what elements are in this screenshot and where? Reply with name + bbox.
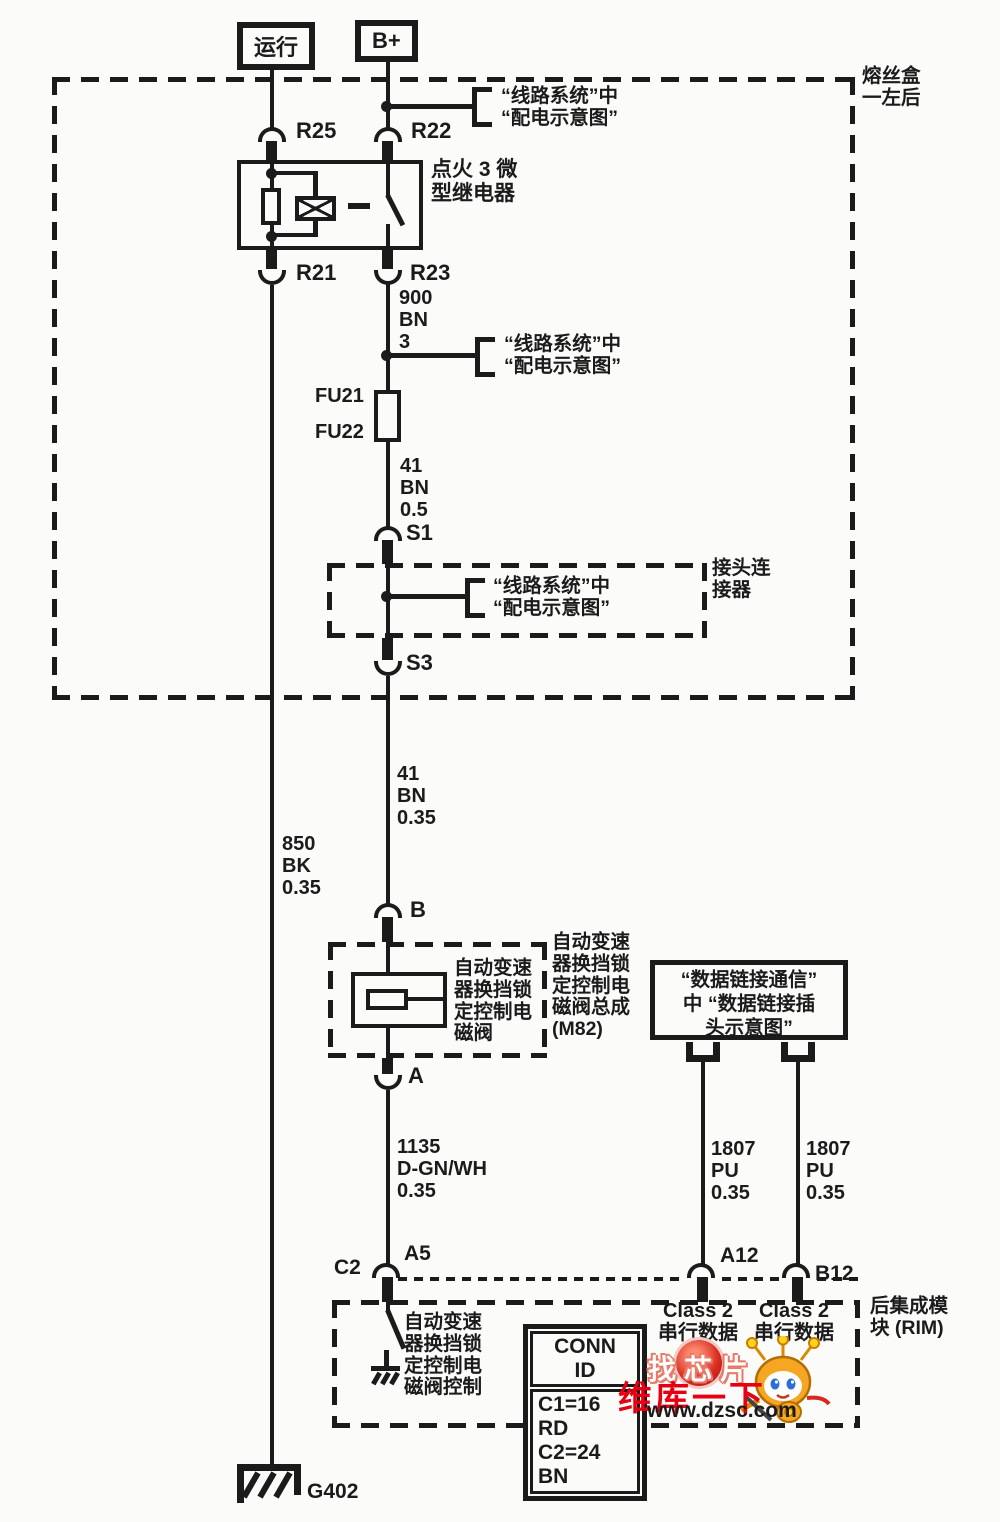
relay-coil-link (272, 233, 318, 237)
wire-segment (701, 1060, 705, 1266)
terminal-r23: R23 (410, 261, 450, 285)
wire-label-900: 900 BN 3 (399, 287, 432, 353)
connector-box-label: 接头连 接器 (712, 558, 771, 602)
connector-arc-b12 (782, 1263, 810, 1278)
relay-contact-dash (348, 203, 370, 209)
terminal-r25: R25 (296, 119, 336, 143)
relay-switch-wire (386, 160, 390, 196)
solenoid-coil (366, 989, 408, 1010)
callout-bracket (475, 337, 495, 377)
m82-assembly-label: 自动变速 器换挡锁 定控制电 磁阀总成 (M82) (552, 932, 630, 1041)
connector-stub (266, 250, 277, 269)
terminal-b12: B12 (815, 1262, 854, 1285)
terminal-a5: A5 (404, 1242, 431, 1265)
connector-arc-a12 (687, 1263, 715, 1278)
connector-arc-a (374, 1075, 402, 1090)
terminal-r22: R22 (411, 119, 451, 143)
terminal-g402: G402 (307, 1480, 358, 1503)
connector-stub (382, 1058, 393, 1074)
rim-label: 后集成模 块 (RIM) (870, 1296, 948, 1340)
fuse-symbol (374, 390, 401, 442)
wire-segment (270, 64, 274, 128)
relay-label: 点火 3 微 型继电器 (431, 158, 517, 205)
rim-connector-line (398, 1277, 684, 1281)
callout-power-distribution: “线路系统”中 “配电示意图” (501, 86, 618, 130)
terminal-s3: S3 (406, 651, 433, 675)
terminal-fu22: FU22 (315, 421, 364, 443)
connector-stub (382, 540, 393, 564)
connector-stub (382, 250, 393, 269)
callout-power-distribution: “线路系统”中 “配电示意图” (504, 334, 621, 378)
wiring-diagram: 运行 B+ 熔丝盒 一左后 R25 点火 3 微 型继电器 R21 R23 “线… (0, 0, 1000, 1522)
callout-bracket (465, 578, 485, 618)
wire-segment (386, 942, 390, 972)
wire-label-1807-left: 1807 PU 0.35 (711, 1138, 756, 1204)
connector-arc-b (374, 903, 402, 918)
wire-segment (386, 1090, 390, 1266)
wire-segment (386, 676, 390, 905)
connector-stub (382, 1277, 393, 1302)
wire-segment (386, 1028, 390, 1058)
connector-arc-c2-a5 (372, 1263, 400, 1278)
rim-connector-line (722, 1277, 780, 1281)
callout-branch-wire (390, 104, 472, 109)
wire-label-1807-right: 1807 PU 0.35 (806, 1138, 851, 1204)
conn-id-row2: C2=24 BN (538, 1441, 632, 1489)
terminal-a: A (408, 1064, 424, 1088)
wire-segment (386, 284, 390, 390)
solenoid-plunger (406, 997, 443, 1001)
connector-stub (792, 1277, 803, 1302)
callout-power-distribution: “线路系统”中 “配电示意图” (493, 576, 610, 620)
wire-label-850: 850 BK 0.35 (282, 833, 321, 899)
relay-coil-link (313, 171, 318, 198)
callout-branch-wire (390, 594, 465, 599)
wire-label-41-035: 41 BN 0.35 (397, 763, 436, 829)
callout-branch-wire (390, 353, 475, 358)
terminal-s1: S1 (406, 521, 433, 545)
fusebox-label: 熔丝盒 一左后 (862, 66, 921, 110)
power-feed-run-label: 运行 (243, 28, 309, 64)
wire-segment (386, 442, 390, 528)
relay-resistor-symbol (261, 188, 281, 225)
power-feed-bplus-label: B+ (361, 26, 412, 56)
ground-bar (371, 1366, 400, 1371)
wire-label-41-05: 41 BN 0.5 (400, 455, 429, 521)
relay-coil-symbol (295, 196, 336, 221)
terminal-fu21: FU21 (315, 385, 364, 407)
connector-stub (382, 917, 393, 942)
class2-label-left: Class 2 串行数据 (652, 1300, 744, 1344)
terminal-c2: C2 (334, 1256, 361, 1279)
terminal-a12: A12 (720, 1244, 759, 1267)
wire-segment (270, 285, 274, 1466)
m82-solenoid-label: 自动变速 器换挡锁 定控制电 磁阀 (454, 958, 532, 1045)
ground-symbol-g402 (237, 1464, 301, 1504)
callout-bracket (472, 87, 492, 127)
connector-stub (382, 141, 393, 161)
watermark-url: www.dzsc.com (647, 1399, 797, 1423)
connector-stub (266, 141, 277, 161)
connector-stub (697, 1277, 708, 1302)
dlc-label: “数据链接通信” 中 “数据链接插 头示意图” (655, 965, 843, 1040)
dlc-cavity-hook (686, 1042, 720, 1062)
connector-stub (382, 638, 393, 660)
wire-label-1135: 1135 D-GN/WH 0.35 (397, 1136, 487, 1202)
terminal-b: B (410, 898, 426, 922)
ground-stub (384, 1350, 389, 1366)
power-feed-bplus-tag: B+ (355, 20, 418, 62)
wire-segment (386, 60, 390, 128)
power-feed-run-tag: 运行 (237, 22, 315, 70)
relay-switch-wire (386, 224, 390, 250)
wire-segment (796, 1060, 800, 1266)
rim-control-label: 自动变速 器换挡锁 定控制电 磁阀控制 (404, 1312, 482, 1399)
dlc-cavity-hook (781, 1042, 815, 1062)
relay-coil-link (272, 171, 318, 175)
dlc-box: “数据链接通信” 中 “数据链接插 头示意图” (650, 960, 848, 1040)
terminal-r21: R21 (296, 261, 336, 285)
